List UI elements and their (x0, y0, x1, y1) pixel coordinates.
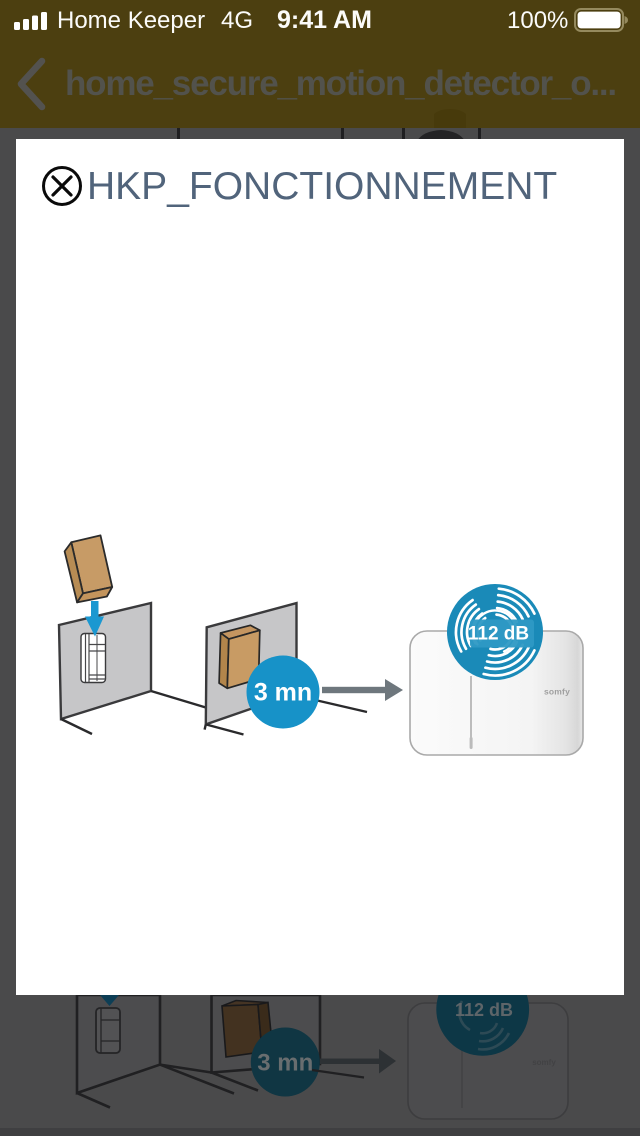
svg-text:3 mn: 3 mn (254, 679, 312, 707)
svg-text:112 dB: 112 dB (455, 1000, 513, 1020)
svg-text:3 mn: 3 mn (257, 1050, 313, 1077)
svg-text:somfy: somfy (544, 687, 570, 697)
svg-text:somfy: somfy (532, 1058, 556, 1067)
svg-text:112 dB: 112 dB (468, 624, 529, 645)
